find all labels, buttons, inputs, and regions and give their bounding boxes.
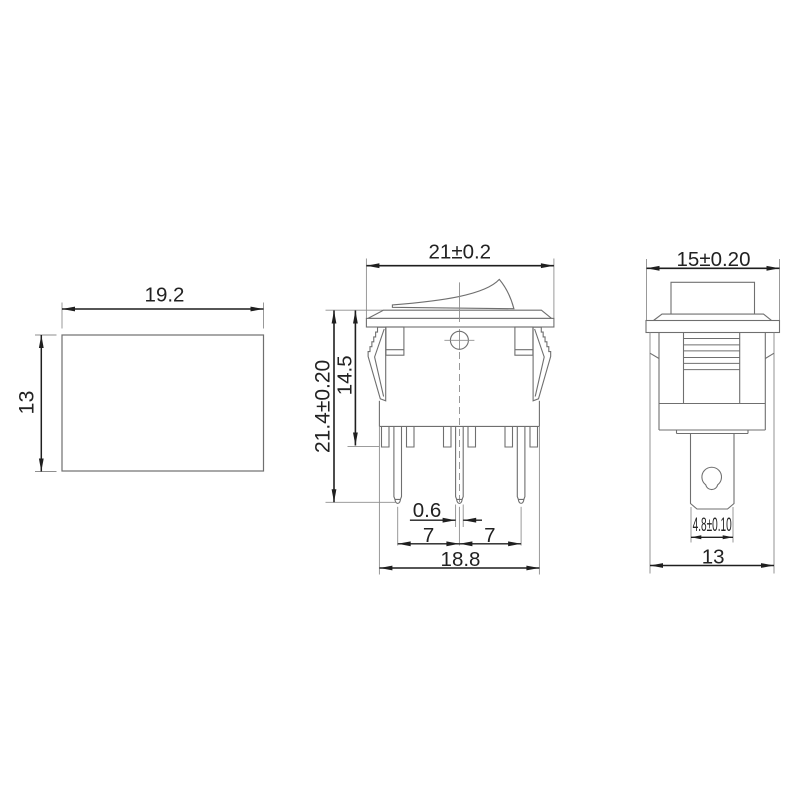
svg-text:0.6: 0.6	[413, 499, 442, 522]
svg-text:7: 7	[484, 524, 495, 547]
svg-text:13: 13	[15, 391, 39, 415]
svg-text:15±0.20: 15±0.20	[677, 248, 751, 271]
svg-text:7: 7	[423, 524, 434, 547]
svg-text:19.2: 19.2	[145, 284, 185, 307]
svg-text:14.5: 14.5	[333, 355, 356, 395]
svg-text:21±0.2: 21±0.2	[429, 240, 492, 263]
svg-text:18.8: 18.8	[441, 548, 481, 571]
svg-text:21.4±0.20: 21.4±0.20	[312, 360, 335, 453]
svg-text:4.8±0.10: 4.8±0.10	[693, 515, 732, 536]
